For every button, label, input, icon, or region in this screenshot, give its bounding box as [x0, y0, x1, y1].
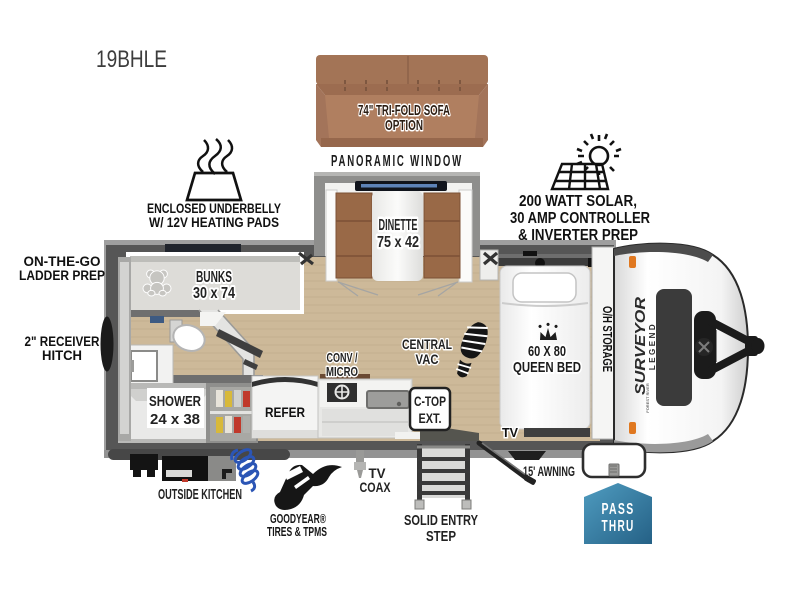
- svg-text:TIRES & TPMS: TIRES & TPMS: [267, 524, 327, 539]
- svg-text:FOREST RIVER: FOREST RIVER: [645, 383, 650, 413]
- svg-text:CENTRAL: CENTRAL: [402, 336, 452, 352]
- svg-text:BUNKS: BUNKS: [196, 269, 232, 286]
- svg-text:15' AWNING: 15' AWNING: [523, 463, 575, 479]
- svg-text:EXT.: EXT.: [419, 410, 442, 426]
- svg-text:75 x 42: 75 x 42: [377, 234, 419, 251]
- svg-text:VAC: VAC: [416, 351, 439, 367]
- svg-text:TV: TV: [502, 425, 518, 440]
- svg-text:SHOWER: SHOWER: [149, 393, 201, 410]
- svg-text:SURVEYOR: SURVEYOR: [632, 297, 649, 395]
- svg-text:STEP: STEP: [426, 528, 456, 545]
- svg-text:ENCLOSED UNDERBELLY: ENCLOSED UNDERBELLY: [147, 201, 281, 216]
- svg-text:30 x 74: 30 x 74: [193, 285, 235, 302]
- svg-text:HITCH: HITCH: [42, 348, 82, 363]
- svg-text:O/H STORAGE: O/H STORAGE: [600, 306, 615, 372]
- svg-text:THRU: THRU: [602, 518, 635, 535]
- svg-text:MICRO: MICRO: [326, 364, 358, 379]
- svg-text:& INVERTER PREP: & INVERTER PREP: [518, 227, 638, 244]
- svg-text:SOLID ENTRY: SOLID ENTRY: [404, 512, 478, 529]
- svg-text:19BHLE: 19BHLE: [96, 46, 167, 73]
- svg-text:LEGEND: LEGEND: [648, 322, 657, 370]
- svg-text:PANORAMIC WINDOW: PANORAMIC WINDOW: [331, 153, 463, 170]
- svg-text:OUTSIDE KITCHEN: OUTSIDE KITCHEN: [158, 486, 242, 503]
- svg-text:QUEEN BED: QUEEN BED: [513, 359, 581, 376]
- svg-text:ON-THE-GO: ON-THE-GO: [24, 254, 101, 269]
- svg-text:C-TOP: C-TOP: [414, 393, 446, 409]
- svg-text:2" RECEIVER: 2" RECEIVER: [25, 334, 100, 349]
- svg-text:DINETTE: DINETTE: [379, 217, 418, 234]
- svg-text:60 X 80: 60 X 80: [528, 343, 566, 360]
- svg-text:24 x 38: 24 x 38: [150, 411, 200, 428]
- svg-text:LADDER PREP: LADDER PREP: [19, 268, 105, 283]
- svg-text:200 WATT SOLAR,: 200 WATT SOLAR,: [519, 193, 637, 210]
- svg-text:PASS: PASS: [602, 501, 635, 518]
- svg-text:CONV /: CONV /: [327, 350, 358, 365]
- svg-text:OPTION: OPTION: [385, 117, 423, 134]
- svg-text:COAX: COAX: [360, 479, 392, 495]
- svg-text:REFER: REFER: [265, 404, 305, 420]
- svg-text:30 AMP CONTROLLER: 30 AMP CONTROLLER: [510, 210, 650, 227]
- svg-text:W/ 12V HEATING PADS: W/ 12V HEATING PADS: [149, 215, 279, 230]
